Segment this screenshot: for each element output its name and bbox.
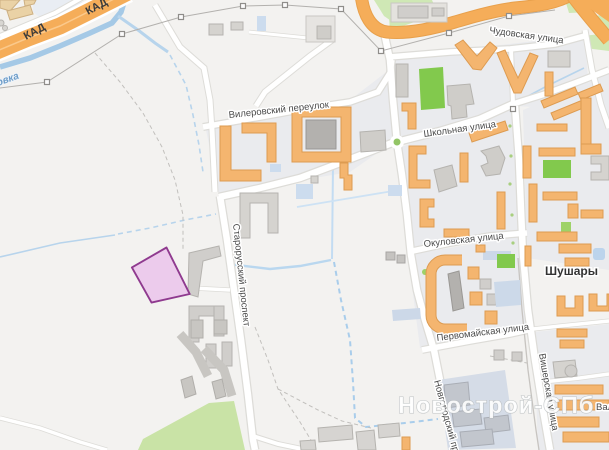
svg-text:Шушары: Шушары <box>545 264 598 278</box>
svg-text:Вал: Вал <box>596 402 609 413</box>
svg-text:Новострой-СПб: Новострой-СПб <box>398 392 594 418</box>
